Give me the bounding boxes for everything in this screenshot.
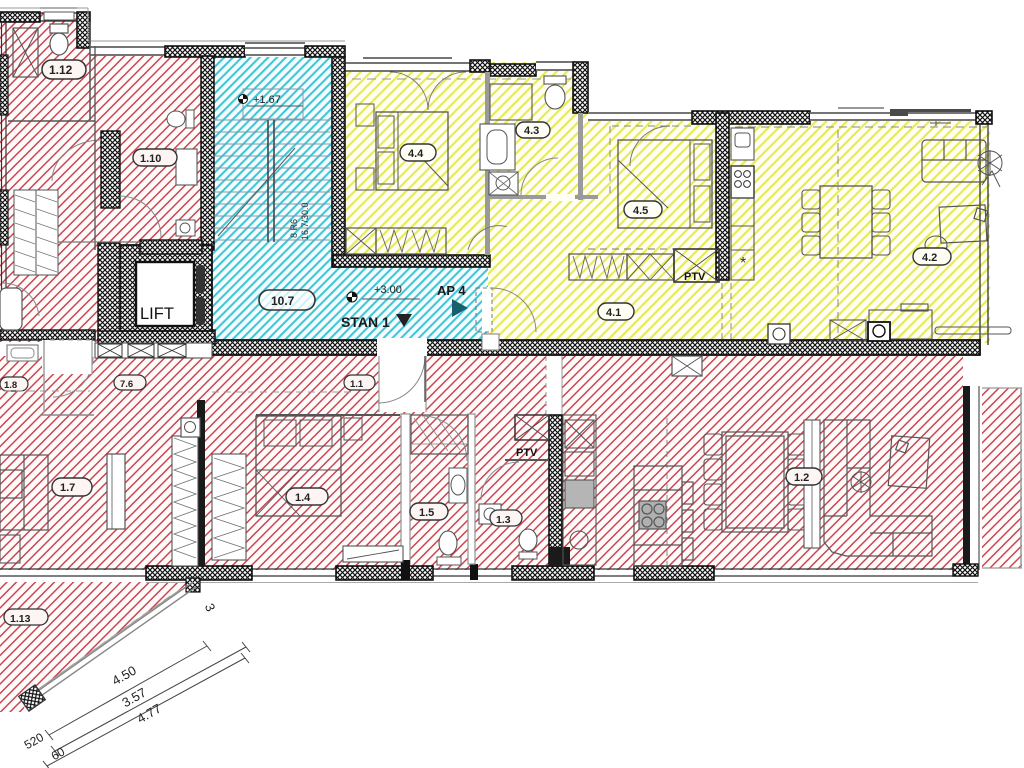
svg-text:+1.67: +1.67	[253, 94, 281, 106]
svg-text:1.4: 1.4	[295, 492, 311, 504]
svg-text:LIFT: LIFT	[140, 305, 174, 323]
svg-text:STAN 1: STAN 1	[341, 314, 390, 330]
svg-text:*: *	[740, 255, 746, 272]
svg-text:1.1: 1.1	[350, 379, 364, 390]
svg-text:1.2: 1.2	[794, 472, 809, 484]
svg-text:4.2: 4.2	[922, 252, 937, 264]
svg-text:1.8: 1.8	[4, 380, 17, 391]
svg-text:4.1: 4.1	[606, 307, 621, 319]
svg-text:PTV: PTV	[516, 447, 538, 459]
svg-text:1.3: 1.3	[496, 514, 511, 526]
svg-text:1.12: 1.12	[49, 63, 73, 77]
svg-text:AP 4: AP 4	[437, 283, 466, 298]
svg-text:7.6: 7.6	[120, 379, 133, 390]
svg-text:4.4: 4.4	[408, 148, 424, 160]
svg-text:1.7: 1.7	[60, 482, 75, 494]
svg-text:4.3: 4.3	[524, 125, 539, 137]
svg-text:+3.00: +3.00	[374, 284, 402, 296]
svg-text:1.10: 1.10	[140, 153, 161, 165]
svg-text:4.5: 4.5	[633, 205, 648, 217]
svg-text:1.13: 1.13	[10, 613, 31, 625]
svg-text:16.7/30.0: 16.7/30.0	[300, 202, 310, 240]
svg-text:10.7: 10.7	[271, 294, 295, 308]
svg-text:1.5: 1.5	[419, 507, 434, 519]
svg-text:PTV: PTV	[684, 271, 706, 283]
svg-text:8 R6: 8 R6	[289, 219, 299, 238]
